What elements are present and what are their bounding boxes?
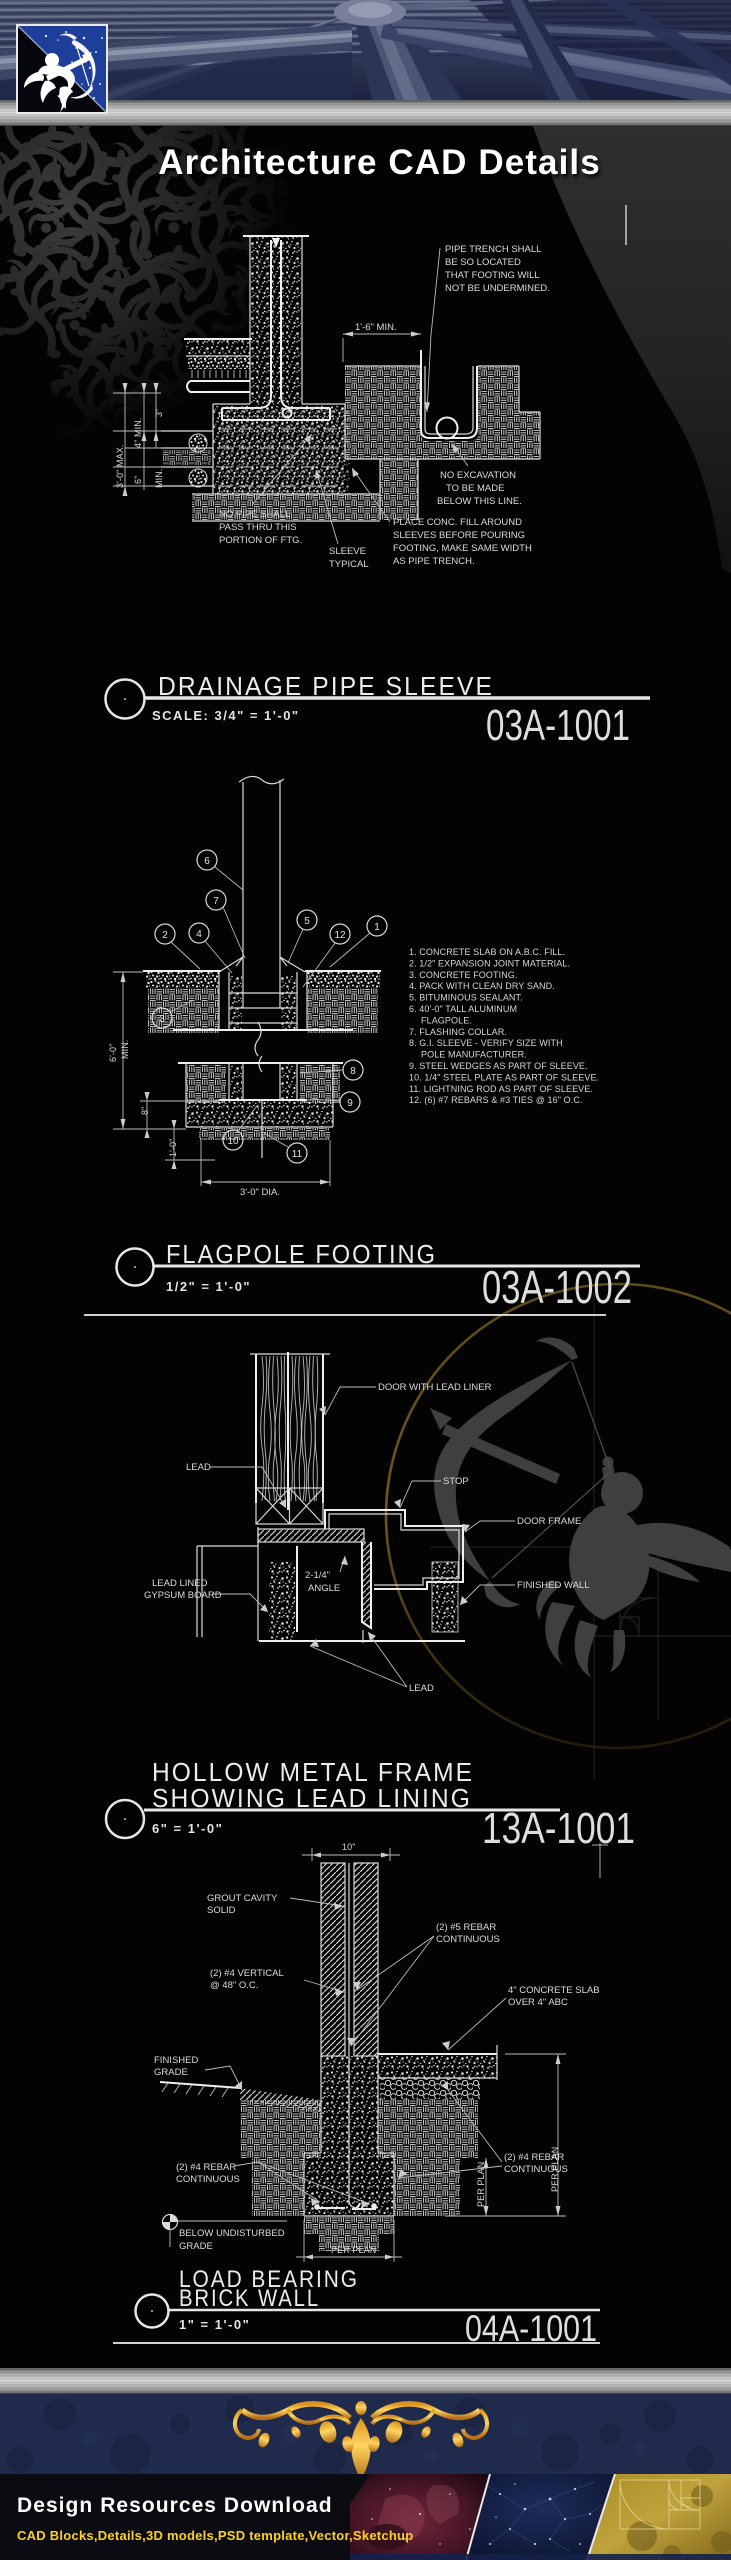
svg-text:CONTINUOUS: CONTINUOUS	[436, 1934, 500, 1945]
svg-text:6. 40'-0" TALL ALUMINUM: 6. 40'-0" TALL ALUMINUM	[409, 1004, 517, 1014]
svg-text:OVER 4" ABC: OVER 4" ABC	[508, 1997, 568, 2008]
svg-text:NO PIPE SHALL: NO PIPE SHALL	[219, 509, 290, 520]
svg-text:10": 10"	[342, 1842, 356, 1852]
svg-text:PORTION OF FTG.: PORTION OF FTG.	[219, 535, 302, 546]
svg-text:8": 8"	[140, 1107, 150, 1115]
svg-text:4: 4	[196, 929, 202, 940]
svg-text:@ 48" O.C.: @ 48" O.C.	[210, 1980, 258, 1991]
svg-text:PIPE TRENCH SHALL: PIPE TRENCH SHALL	[445, 244, 541, 255]
svg-text:3": 3"	[154, 409, 164, 417]
svg-text:SHOWING LEAD LINING: SHOWING LEAD LINING	[152, 1783, 472, 1813]
svg-text:6" = 1'-0": 6" = 1'-0"	[152, 1821, 223, 1836]
svg-text:GRADE: GRADE	[154, 2067, 188, 2078]
svg-text:PASS THRU THIS: PASS THRU THIS	[219, 522, 297, 533]
svg-text:8: 8	[350, 1066, 356, 1077]
svg-text:PLACE CONC. FILL AROUND: PLACE CONC. FILL AROUND	[393, 517, 522, 528]
svg-text:2: 2	[162, 930, 168, 941]
svg-text:6'-0": 6'-0"	[108, 1044, 118, 1062]
svg-text:11. LIGHTNING ROD AS PART OF: 11. LIGHTNING ROD AS PART OF SLEEVE.	[409, 1084, 593, 1094]
svg-text:13A-1001: 13A-1001	[482, 1804, 635, 1853]
svg-text:12: 12	[334, 930, 346, 941]
svg-text:SLEEVE: SLEEVE	[329, 546, 366, 557]
svg-text:7. FLASHING COLLAR.: 7. FLASHING COLLAR.	[409, 1027, 507, 1037]
svg-text:GROUT CAVITY: GROUT CAVITY	[207, 1893, 278, 1904]
svg-text:4" MIN.: 4" MIN.	[133, 418, 143, 448]
svg-text:GYPSUM BOARD: GYPSUM BOARD	[144, 1590, 222, 1601]
svg-text:3. CONCRETE FOOTING.: 3. CONCRETE FOOTING.	[409, 970, 518, 980]
svg-text:LEAD LINED: LEAD LINED	[152, 1578, 208, 1589]
svg-text:2. 1/2" EXPANSION JOINT MATE: 2. 1/2" EXPANSION JOINT MATERIAL.	[409, 958, 570, 968]
svg-text:BELOW UNDISTURBED: BELOW UNDISTURBED	[179, 2228, 285, 2239]
svg-text:1'-6" MIN.: 1'-6" MIN.	[355, 322, 397, 333]
svg-text:6: 6	[204, 856, 210, 867]
svg-text:BRICK WALL: BRICK WALL	[179, 2285, 320, 2312]
svg-text:5: 5	[304, 916, 310, 927]
svg-text:SLEEVES BEFORE POURING: SLEEVES BEFORE POURING	[393, 530, 525, 541]
svg-text:ANGLE: ANGLE	[308, 1583, 340, 1594]
svg-text:STOP: STOP	[443, 1476, 469, 1487]
svg-text:SOLID: SOLID	[207, 1905, 236, 1916]
svg-text:10. 1/4" STEEL PLATE AS PART O: 10. 1/4" STEEL PLATE AS PART OF SLEEVE.	[409, 1072, 599, 1082]
svg-text:THAT FOOTING WILL: THAT FOOTING WILL	[445, 270, 540, 281]
svg-text:CONTINUOUS: CONTINUOUS	[176, 2174, 240, 2185]
svg-text:BE SO LOCATED: BE SO LOCATED	[445, 257, 521, 268]
svg-text:9: 9	[347, 1098, 353, 1109]
svg-text:7: 7	[213, 896, 219, 907]
svg-text:2-1/4": 2-1/4"	[305, 1570, 330, 1581]
svg-text:GRADE: GRADE	[179, 2241, 213, 2252]
svg-text:10: 10	[227, 1136, 239, 1147]
svg-text:5. BITUMINOUS SEALANT.: 5. BITUMINOUS SEALANT.	[409, 993, 523, 1003]
svg-text:(2) #4 REBAR: (2) #4 REBAR	[504, 2152, 564, 2163]
svg-text:3'-0" DIA.: 3'-0" DIA.	[240, 1187, 280, 1198]
svg-text:BELOW THIS LINE.: BELOW THIS LINE.	[437, 496, 522, 507]
svg-text:1. CONCRETE SLAB ON A.B.C. F: 1. CONCRETE SLAB ON A.B.C. FILL.	[409, 947, 565, 957]
svg-text:FLAGPOLE.: FLAGPOLE.	[421, 1015, 472, 1025]
svg-text:MIN.: MIN.	[120, 1040, 130, 1059]
svg-text:(2) #4 REBAR: (2) #4 REBAR	[176, 2162, 236, 2173]
svg-text:CONTINUOUS: CONTINUOUS	[504, 2164, 568, 2175]
svg-text:FINISHED: FINISHED	[154, 2055, 198, 2066]
svg-text:1: 1	[374, 922, 380, 933]
svg-text:DOOR WITH LEAD LINER: DOOR WITH LEAD LINER	[378, 1382, 492, 1393]
svg-text:03A-1001: 03A-1001	[486, 701, 630, 750]
svg-text:DRAINAGE PIPE SLEEVE: DRAINAGE PIPE SLEEVE	[158, 671, 494, 701]
svg-text:(2) #4 VERTICAL: (2) #4 VERTICAL	[210, 1968, 284, 1979]
svg-text:FOOTING, MAKE SAME WIDTH: FOOTING, MAKE SAME WIDTH	[393, 543, 532, 554]
svg-text:LEAD: LEAD	[409, 1683, 434, 1694]
svg-text:4" CONCRETE SLAB: 4" CONCRETE SLAB	[508, 1985, 600, 1996]
svg-text:03A-1002: 03A-1002	[482, 1261, 632, 1313]
svg-text:MIN.: MIN.	[154, 469, 164, 488]
svg-text:12. (6) #7 REBARS & #3 TIES @: 12. (6) #7 REBARS & #3 TIES @ 16" O.C.	[409, 1095, 583, 1105]
svg-text:PER PLAN: PER PLAN	[331, 2245, 376, 2255]
svg-text:FLAGPOLE FOOTING: FLAGPOLE FOOTING	[166, 1239, 437, 1269]
svg-text:3'-0" MAX.: 3'-0" MAX.	[115, 445, 125, 488]
svg-text:NO EXCAVATION: NO EXCAVATION	[440, 470, 516, 481]
svg-text:11: 11	[292, 1149, 303, 1160]
svg-text:6": 6"	[133, 476, 143, 484]
svg-text:8. G.I. SLEEVE - VERIFY SIZE: 8. G.I. SLEEVE - VERIFY SIZE WITH	[409, 1038, 563, 1048]
svg-text:AS PIPE TRENCH.: AS PIPE TRENCH.	[393, 556, 475, 567]
svg-text:3: 3	[159, 1014, 165, 1025]
svg-text:POLE MANUFACTURER.: POLE MANUFACTURER.	[421, 1050, 527, 1060]
svg-text:TO BE MADE: TO BE MADE	[446, 483, 504, 494]
svg-text:(2) #5 REBAR: (2) #5 REBAR	[436, 1922, 496, 1933]
svg-text:LEAD: LEAD	[186, 1462, 211, 1473]
svg-text:DOOR FRAME: DOOR FRAME	[517, 1516, 581, 1527]
svg-text:1/2" = 1'-0": 1/2" = 1'-0"	[166, 1279, 251, 1294]
svg-text:4. PACK WITH CLEAN DRY SAND.: 4. PACK WITH CLEAN DRY SAND.	[409, 981, 555, 991]
svg-text:FINISHED WALL: FINISHED WALL	[517, 1580, 590, 1591]
svg-text:NOT BE UNDERMINED.: NOT BE UNDERMINED.	[445, 283, 550, 294]
svg-text:SCALE: 3/4" = 1'-0": SCALE: 3/4" = 1'-0"	[152, 708, 300, 723]
svg-text:TYPICAL: TYPICAL	[329, 559, 369, 570]
svg-text:1" = 1'-0": 1" = 1'-0"	[179, 2317, 250, 2332]
svg-text:1'-0": 1'-0"	[168, 1139, 178, 1157]
svg-text:9. STEEL WEDGES AS PART OF S: 9. STEEL WEDGES AS PART OF SLEEVE.	[409, 1061, 588, 1071]
